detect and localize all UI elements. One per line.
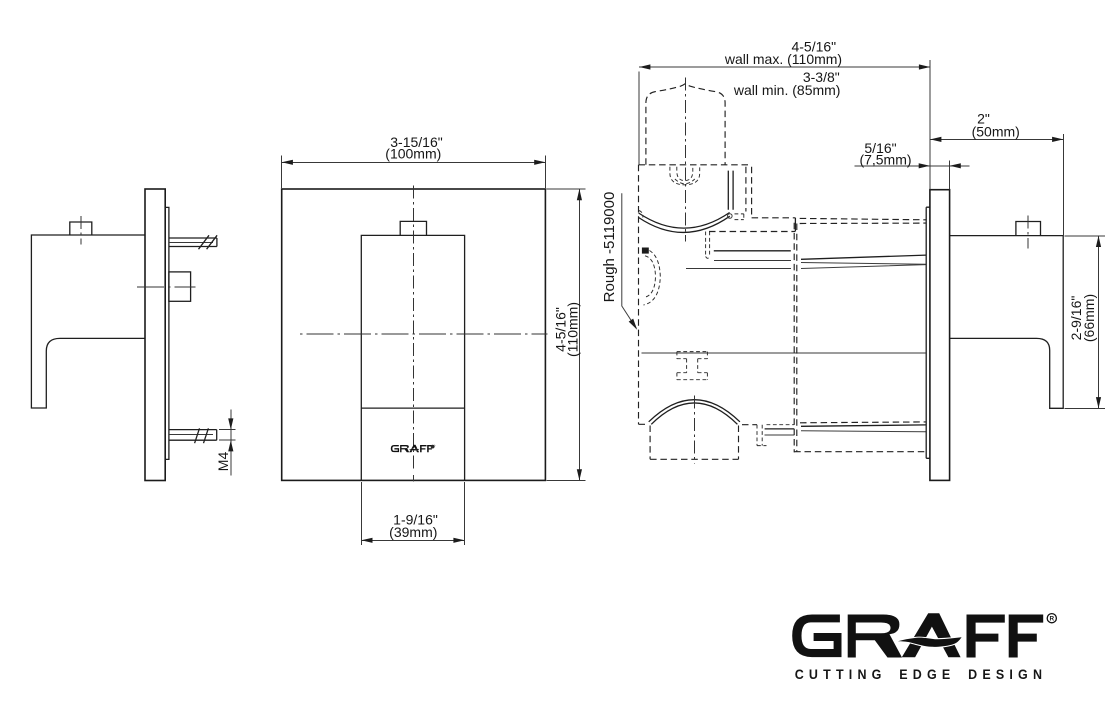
svg-text:wall min. (85mm): wall min. (85mm) <box>733 82 841 98</box>
svg-text:CUTTING EDGE DESIGN: CUTTING EDGE DESIGN <box>795 667 1047 683</box>
svg-text:Rough -5119000: Rough -5119000 <box>601 192 618 303</box>
svg-text:(7,5mm): (7,5mm) <box>859 151 911 167</box>
svg-text:R: R <box>1049 616 1054 623</box>
svg-text:wall max. (110mm): wall max. (110mm) <box>724 51 842 67</box>
svg-text:(66mm): (66mm) <box>1081 294 1097 342</box>
svg-text:(39mm): (39mm) <box>389 524 437 540</box>
svg-text:M4: M4 <box>215 452 231 472</box>
svg-text:(110mm): (110mm) <box>565 302 581 357</box>
svg-text:(100mm): (100mm) <box>385 146 441 162</box>
svg-text:(50mm): (50mm) <box>972 124 1020 140</box>
